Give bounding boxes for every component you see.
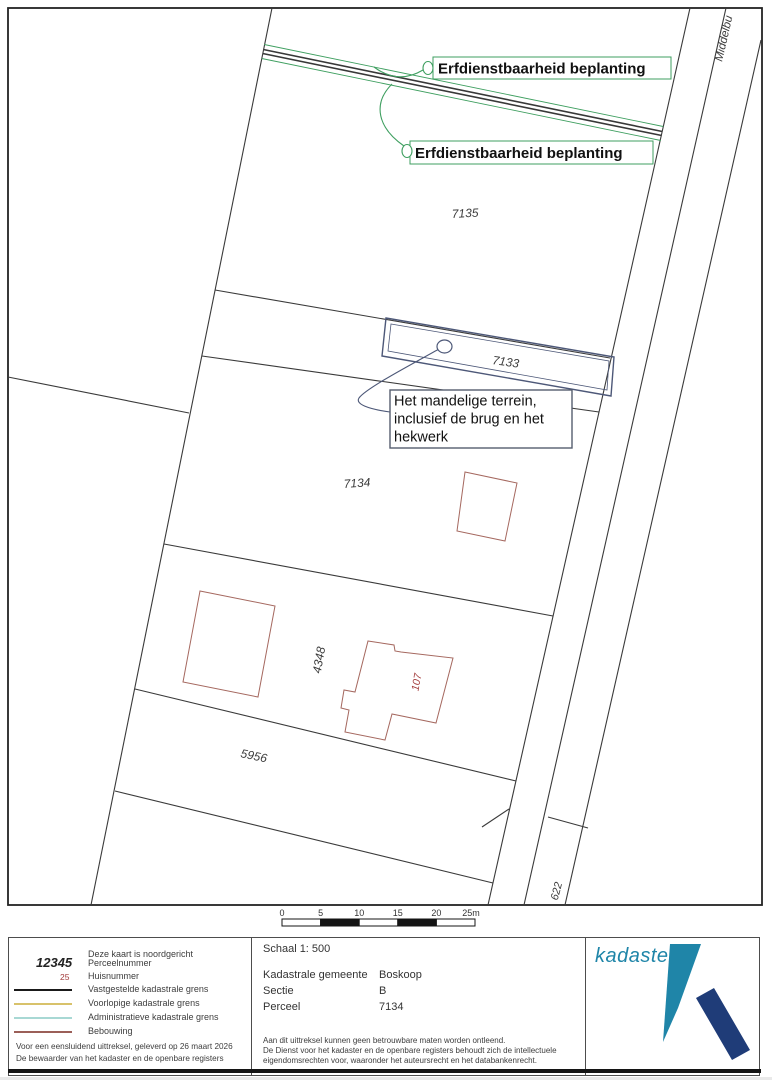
field-label-sectie: Sectie [263,985,294,997]
servitude-anchor-circle [423,62,433,75]
parcel-boundary-line [215,290,610,358]
servitude-label-top: Erfdienstbaarheid beplanting [438,61,646,78]
certification-line2: De bewaarder van het kadaster en de open… [16,1054,224,1063]
parcel-label-7134: 7134 [343,475,371,491]
scalebar: 0 5 10 15 20 25m [279,908,479,926]
field-label-gemeente: Kadastrale gemeente [263,969,368,981]
mandelig-note-line1: Het mandelige terrein, [394,394,537,410]
road-name-label: Middelbu [713,14,735,63]
legend-swatch-perceelnummer: 12345 [36,955,72,970]
servitude-anchor-circle [402,145,412,158]
house-number-label-107: 107 [410,671,425,691]
parcel-label-4348: 4348 [310,645,328,674]
field-value-sectie: B [379,985,386,997]
certification-line1: Voor een eensluidend uittreksel, gelever… [16,1042,233,1051]
scalebar-segment [282,919,321,926]
disclaimer-line1: Aan dit uittreksel kunnen geen betrouwba… [263,1036,505,1045]
field-value-perceel: 7134 [379,1001,403,1013]
panel-divider [585,937,586,1076]
scalebar-tick-label: 25m [462,908,480,918]
legend-swatch-huisnummer: 25 [60,972,69,982]
field-label-perceel: Perceel [263,1001,300,1013]
kadaster-map-extract: Erfdienstbaarheid beplanting Erfdienstba… [0,0,772,1080]
cadastral-map: Erfdienstbaarheid beplanting Erfdienstba… [0,0,772,935]
mandelig-note-line3: hekwerk [394,430,449,446]
field-value-gemeente: Boskoop [379,969,422,981]
road-cross-boundary [482,809,509,827]
parcel-boundary-line [164,544,553,616]
scalebar-tick-label: 5 [318,908,323,918]
road-edge-line [565,40,761,905]
west-boundary-line [91,8,272,905]
building-outline [457,472,517,541]
kadaster-logo-mark [650,940,762,1072]
parcel-label-7135: 7135 [451,206,479,221]
scalebar-tick-label: 15 [393,908,403,918]
panel-divider [251,937,252,1076]
legend-line-voorlopig [14,1003,72,1005]
legend-label-perceelnummer: Perceelnummer [88,958,152,968]
mandelig-anchor-circle [437,340,452,353]
legend-label-vastgesteld: Vastgestelde kadastrale grens [88,984,208,994]
building-outline [183,591,275,697]
buildings [183,472,517,740]
parcel-boundary-line [8,377,189,413]
legend-label-administratief: Administratieve kadastrale grens [88,1012,219,1022]
disclaimer-line2: De Dienst voor het kadaster en de openba… [263,1046,557,1055]
legend-label-huisnummer: Huisnummer [88,971,139,981]
scalebar-segment [436,919,475,926]
parcel-boundary-line [115,791,493,883]
scalebar-tick-label: 0 [279,908,284,918]
scalebar-tick-label: 20 [431,908,441,918]
servitude-leader-line [380,84,404,146]
scalebar-segment [321,919,360,926]
parcel-boundaries [115,290,610,883]
legend-line-administratief [14,1017,72,1019]
scalebar-segment [359,919,398,926]
servitude-label-bottom: Erfdienstbaarheid beplanting [415,145,623,162]
legend-label-voorlopig: Voorlopige kadastrale grens [88,998,200,1008]
panel-bottom-rule [8,1069,761,1073]
scale-text: Schaal 1: 500 [263,943,330,955]
scalebar-tick-label: 10 [354,908,364,918]
parcel-boundary-line [135,689,516,781]
parcel-label-5956: 5956 [239,746,268,765]
logo-stroke-shape [696,988,750,1060]
legend-line-bebouwing [14,1031,72,1033]
mandelig-note-line2: inclusief de brug en het [394,412,544,428]
parcel-label-7133: 7133 [492,353,521,371]
logo-blade-shape [663,944,701,1042]
legend-label-bebouwing: Bebouwing [88,1026,133,1036]
building-outline-house-107 [341,641,453,740]
legend-line-vastgesteld [14,989,72,991]
road-cross-boundary [548,817,588,828]
disclaimer-line3: eigendomsrechten voor, waaronder het aut… [263,1056,537,1065]
parcel-label-622: 622 [549,881,565,902]
scalebar-segment [398,919,437,926]
